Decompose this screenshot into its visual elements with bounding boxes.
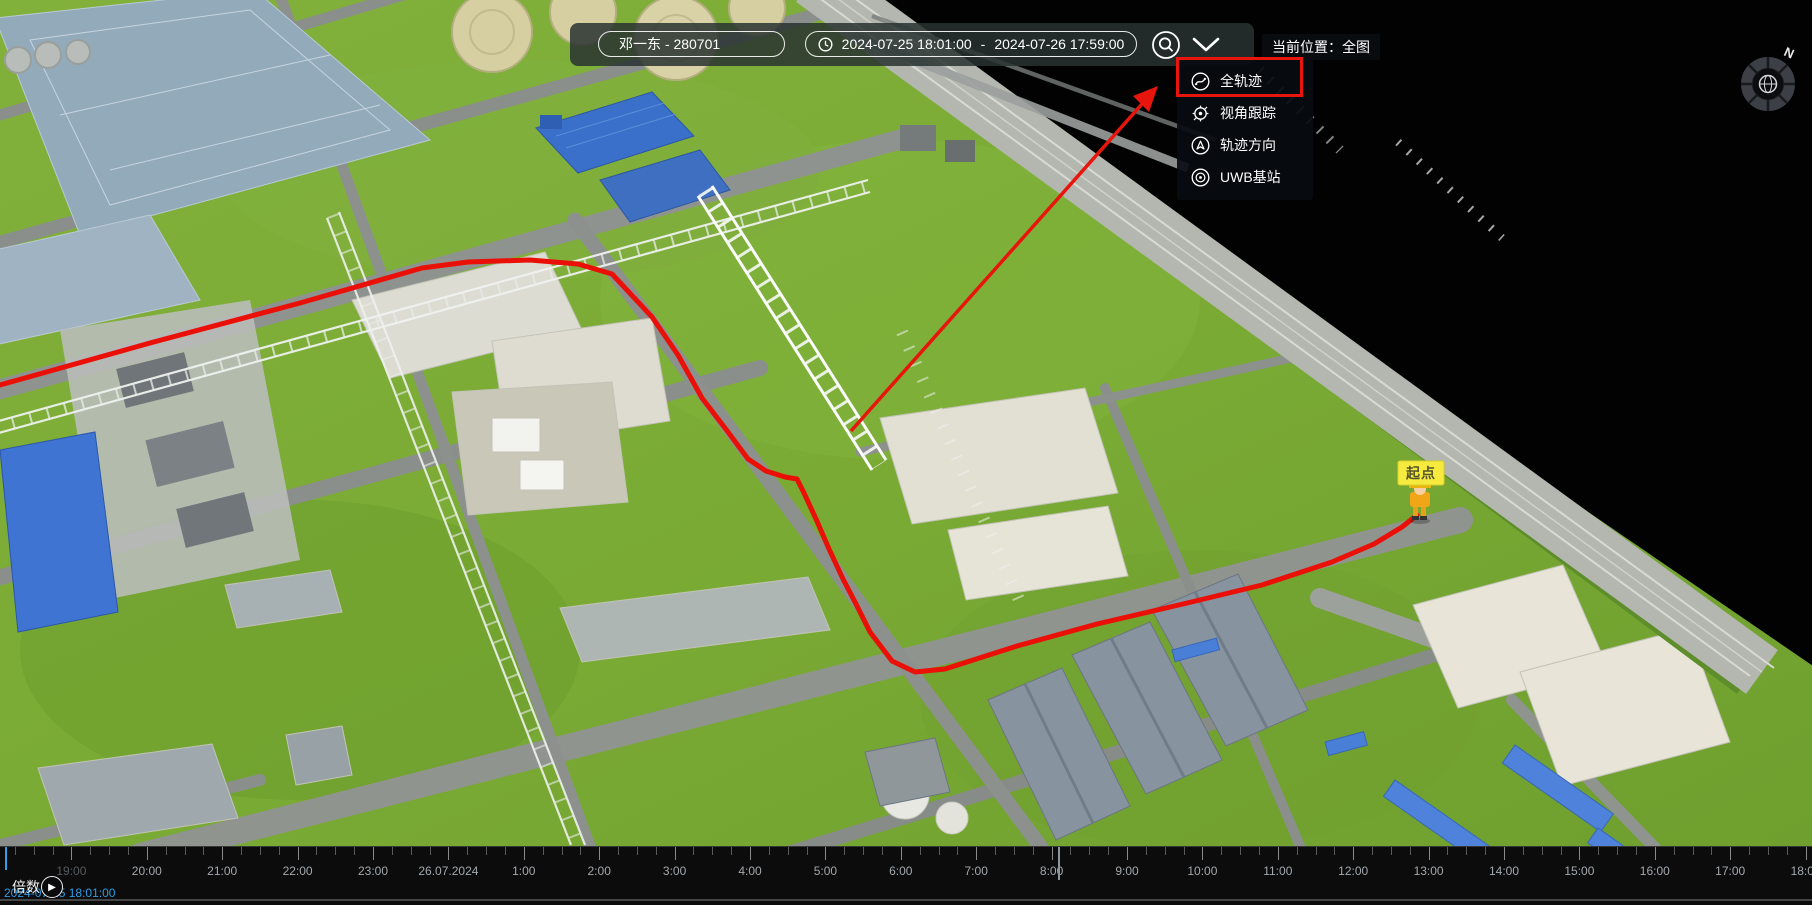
timeline-tick-label: 19:00 — [56, 864, 86, 878]
start-label: 起点 — [1405, 465, 1436, 481]
person-selector[interactable]: 邓一东 - 280701 — [598, 31, 785, 57]
menu-item-trajectory-direction[interactable]: 轨迹方向 — [1177, 129, 1313, 161]
timeline-tick — [1108, 847, 1109, 855]
timeline-tick — [882, 847, 883, 855]
timeline-tick — [1504, 847, 1505, 860]
timeline-tick — [53, 847, 54, 855]
timeline-tick — [1410, 847, 1411, 855]
timeline-tick — [807, 847, 808, 855]
menu-item-label: 视角跟踪 — [1220, 103, 1276, 123]
timeline-tick — [1466, 847, 1467, 855]
timeline-tick-label: 12:00 — [1338, 864, 1368, 878]
timeline-tick — [712, 847, 713, 855]
time-range-start: 2024-07-25 18:01:00 — [842, 36, 972, 52]
map-3d-view[interactable]: 起点 N — [0, 0, 1812, 846]
timeline-bottom-rule — [0, 899, 1812, 901]
timeline-tick — [637, 847, 638, 855]
timeline-tick — [1202, 847, 1203, 860]
trajectory-toolbar: 邓一东 - 280701 2024-07-25 18:01:00 - 2024-… — [570, 23, 1254, 66]
timeline-tick-label: 7:00 — [965, 864, 988, 878]
menu-item-uwb-station[interactable]: UWB基站 — [1177, 161, 1313, 193]
app-window: 起点 N 邓一东 - 280701 — [0, 0, 1812, 905]
layers-dropdown-menu: 全轨迹 视角跟踪 轨迹方向 UWB基站 — [1177, 58, 1313, 200]
timeline-tick-label: 5:00 — [814, 864, 837, 878]
timeline-tick — [731, 847, 732, 855]
timeline-tick — [392, 847, 393, 855]
timeline-tick-label: 10:00 — [1187, 864, 1217, 878]
play-button[interactable]: ▶ — [41, 876, 63, 898]
timeline-tick — [1523, 847, 1524, 855]
timeline-tick — [1749, 847, 1750, 855]
timeline-tick-label: 18:00 — [1791, 864, 1812, 878]
menu-item-view-tracking[interactable]: 视角跟踪 — [1177, 97, 1313, 129]
timeline-tick — [1711, 847, 1712, 855]
timeline-tick — [203, 847, 204, 855]
timeline-tick — [298, 847, 299, 860]
timeline-tick — [1127, 847, 1128, 860]
timeline-tick — [543, 847, 544, 855]
timeline-tick — [675, 847, 676, 860]
timeline-tick — [844, 847, 845, 855]
timeline-tick-label: 21:00 — [207, 864, 237, 878]
timeline-tick — [750, 847, 751, 860]
timeline-tick-label: 11:00 — [1263, 864, 1292, 878]
timeline-tick — [1429, 847, 1430, 860]
timeline-tick — [1617, 847, 1618, 855]
timeline-tick — [1579, 847, 1580, 860]
timeline-tick — [1297, 847, 1298, 855]
map-scene: 起点 N — [0, 0, 1812, 846]
locate-search-button[interactable] — [1150, 29, 1182, 61]
timeline-tick — [1674, 847, 1675, 855]
trajectory-direction-icon — [1190, 135, 1211, 156]
timeline-tick — [448, 847, 449, 860]
magnifier-circle-icon — [1151, 30, 1181, 60]
timeline-tick-label: 2:00 — [588, 864, 611, 878]
timeline-tick — [1768, 847, 1769, 855]
timeline-tick — [769, 847, 770, 855]
timeline-tick — [1184, 847, 1185, 855]
timeline-tick — [1391, 847, 1392, 855]
full-trajectory-icon — [1190, 71, 1211, 92]
timeline-tick — [316, 847, 317, 855]
timeline-tick — [1447, 847, 1448, 855]
timeline-tick — [1146, 847, 1147, 855]
timeline-tick — [995, 847, 996, 855]
timeline-tick — [1221, 847, 1222, 855]
timeline-tick-label: 23:00 — [358, 864, 388, 878]
timeline-tick — [1693, 847, 1694, 855]
play-icon: ▶ — [48, 882, 56, 893]
timeline-tick — [486, 847, 487, 855]
timeline-tick — [128, 847, 129, 855]
playback-speed-label[interactable]: 倍数 — [12, 877, 40, 897]
timeline-tick — [1787, 847, 1788, 855]
timeline-tick — [109, 847, 110, 855]
timeline-tick — [901, 847, 902, 860]
timeline-marker[interactable] — [1058, 847, 1060, 880]
timeline-tick — [1334, 847, 1335, 855]
timeline-tick — [618, 847, 619, 855]
timeline-tick — [524, 847, 525, 860]
timeline-tick — [920, 847, 921, 855]
timeline-tick — [1598, 847, 1599, 855]
timeline-tick-label: 6:00 — [889, 864, 912, 878]
timeline-tick — [1278, 847, 1279, 860]
menu-item-label: 轨迹方向 — [1220, 135, 1276, 155]
timeline-bar[interactable]: 19:0020:0021:0022:0023:0026.07.20241:002… — [0, 846, 1812, 905]
timeline-tick — [166, 847, 167, 855]
menu-item-label: UWB基站 — [1220, 167, 1281, 187]
timeline-tick — [863, 847, 864, 855]
timeline-tick — [90, 847, 91, 855]
timeline-tick — [147, 847, 148, 860]
timeline-tick — [467, 847, 468, 855]
timeline-tick — [354, 847, 355, 855]
timeline-playhead[interactable] — [5, 847, 7, 870]
timeline-tick — [562, 847, 563, 855]
timeline-tick — [260, 847, 261, 855]
timeline-tick — [71, 847, 72, 860]
timeline-tick — [1316, 847, 1317, 855]
chevron-down-icon — [1191, 36, 1221, 54]
timeline-tick — [1014, 847, 1015, 855]
current-location-label: 当前位置：全图 — [1262, 34, 1380, 60]
time-range-picker[interactable]: 2024-07-25 18:01:00 - 2024-07-26 17:59:0… — [805, 31, 1137, 57]
timeline-tick — [656, 847, 657, 855]
timeline-tick-label: 4:00 — [738, 864, 761, 878]
timeline-tick — [241, 847, 242, 855]
timeline-tick — [1372, 847, 1373, 855]
timeline-tick-label: 9:00 — [1115, 864, 1138, 878]
timeline-tick-label: 22:00 — [283, 864, 313, 878]
menu-item-label: 全轨迹 — [1220, 71, 1262, 91]
timeline-tick — [580, 847, 581, 855]
timeline-tick — [1259, 847, 1260, 855]
menu-item-full-trajectory[interactable]: 全轨迹 — [1177, 65, 1313, 97]
timeline-tick — [1561, 847, 1562, 855]
time-range-end: 2024-07-26 17:59:00 — [994, 36, 1124, 52]
timeline-tick — [1070, 847, 1071, 855]
timeline-tick — [1730, 847, 1731, 860]
current-location-text: 当前位置：全图 — [1272, 37, 1370, 57]
timeline-tick — [430, 847, 431, 855]
timeline-tick — [335, 847, 336, 855]
uwb-station-icon — [1190, 167, 1211, 188]
timeline-tick — [1636, 847, 1637, 855]
timeline-tick — [976, 847, 977, 860]
person-selector-value: 邓一东 - 280701 — [619, 34, 720, 54]
timeline-tick — [15, 847, 16, 855]
timeline-tick — [222, 847, 223, 860]
timeline-tick — [825, 847, 826, 860]
layers-dropdown-toggle[interactable] — [1190, 29, 1222, 61]
timeline-tick — [279, 847, 280, 855]
timeline-tick — [1033, 847, 1034, 855]
timeline-tick-label: 13:00 — [1414, 864, 1444, 878]
timeline-tick — [693, 847, 694, 855]
timeline-tick-label: 15:00 — [1564, 864, 1594, 878]
timeline-tick-label: 20:00 — [132, 864, 162, 878]
time-range-separator: - — [981, 36, 986, 52]
timeline-tick — [1240, 847, 1241, 855]
timeline-tick — [788, 847, 789, 855]
timeline-tick — [1353, 847, 1354, 860]
timeline-tick — [185, 847, 186, 855]
timeline-tick — [1655, 847, 1656, 860]
timeline-tick-label: 17:00 — [1715, 864, 1745, 878]
timeline-tick-label: 3:00 — [663, 864, 686, 878]
timeline-tick — [1542, 847, 1543, 855]
timeline-tick — [599, 847, 600, 860]
timeline-tick-label: 16:00 — [1640, 864, 1670, 878]
timeline-tick — [939, 847, 940, 855]
timeline-tick — [957, 847, 958, 855]
timeline-tick — [505, 847, 506, 855]
timeline-tick-label: 1:00 — [512, 864, 535, 878]
timeline-tick — [373, 847, 374, 860]
timeline-tick — [1052, 847, 1053, 860]
timeline-tick — [1485, 847, 1486, 855]
timeline-tick — [34, 847, 35, 855]
timeline-tick — [1165, 847, 1166, 855]
timeline-tick — [1806, 847, 1807, 860]
view-tracking-icon — [1190, 103, 1211, 124]
timeline-tick-label: 14:00 — [1489, 864, 1519, 878]
timeline-tick — [411, 847, 412, 855]
clock-icon — [818, 37, 833, 52]
timeline-tick-label: 26.07.2024 — [418, 864, 478, 878]
timeline-tick — [1089, 847, 1090, 855]
